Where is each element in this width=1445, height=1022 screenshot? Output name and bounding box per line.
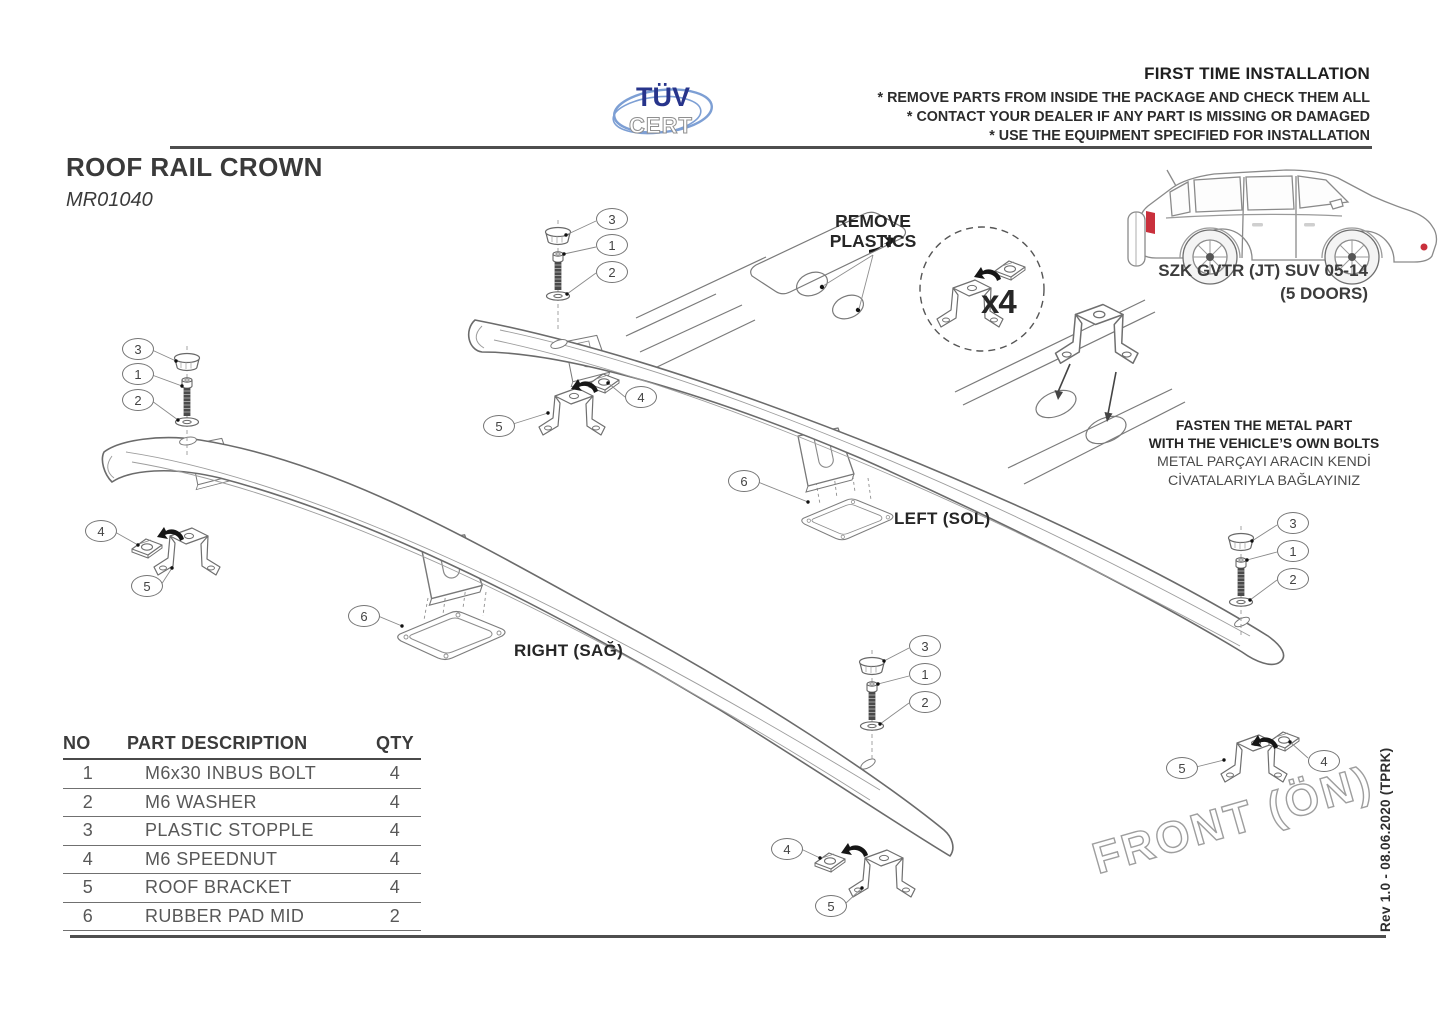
table-row: 6 RUBBER PAD MID 2 — [63, 903, 421, 932]
parts-table-header: NO PART DESCRIPTION QTY — [63, 733, 421, 760]
callout-4: 4 — [85, 520, 117, 542]
callout-5: 5 — [1166, 757, 1198, 779]
fasten-instruction-tr: CİVATALARIYLA BAĞLAYINIZ — [1148, 472, 1380, 490]
col-description: PART DESCRIPTION — [127, 733, 369, 754]
tuv-cert-logo: TÜV CERT — [611, 82, 714, 138]
footer-divider — [70, 935, 1386, 938]
col-no: NO — [63, 733, 127, 754]
callout-2: 2 — [596, 261, 628, 283]
vehicle-doors: (5 DOORS) — [1158, 283, 1368, 306]
rubber-pad-right — [398, 586, 505, 660]
vehicle-caption: SZK GVTR (JT) SUV 05-14 (5 DOORS) — [1158, 260, 1368, 306]
fastener-stack — [546, 220, 571, 332]
bracket-assembly-right — [1221, 732, 1299, 782]
taillight — [1146, 211, 1155, 234]
first-time-note: * USE THE EQUIPMENT SPECIFIED FOR INSTAL… — [878, 127, 1370, 146]
tuv-logo-text: TÜV — [636, 82, 690, 112]
fastener-stack — [860, 650, 885, 762]
callout-1: 1 — [596, 234, 628, 256]
table-row: 1 M6x30 INBUS BOLT 4 — [63, 760, 421, 789]
callout-2: 2 — [122, 389, 154, 411]
vehicle-model: SZK GVTR (JT) SUV 05-14 — [1158, 260, 1368, 283]
page-title: ROOF RAIL CROWN — [66, 152, 323, 183]
parts-table: NO PART DESCRIPTION QTY 1 M6x30 INBUS BO… — [63, 733, 421, 931]
callout-3: 3 — [596, 208, 628, 230]
multiplier-label: x4 — [981, 283, 1016, 321]
callout-3: 3 — [909, 635, 941, 657]
first-time-title: FIRST TIME INSTALLATION — [878, 64, 1370, 84]
callout-4: 4 — [1308, 750, 1340, 772]
first-time-installation-block: FIRST TIME INSTALLATION * REMOVE PARTS F… — [878, 64, 1370, 146]
callout-1: 1 — [1277, 540, 1309, 562]
revision-note: Rev 1.0 - 08.06.2020 (TPRK) — [1378, 748, 1393, 932]
cert-logo-text: CERT — [629, 113, 693, 138]
right-rail-label: RIGHT (SAĞ) — [514, 641, 623, 661]
callout-4: 4 — [771, 838, 803, 860]
bracket-assembly-bottom — [815, 843, 915, 897]
callout-6: 6 — [348, 605, 380, 627]
callout-5: 5 — [483, 415, 515, 437]
callout-3: 3 — [122, 338, 154, 360]
callout-2: 2 — [909, 691, 941, 713]
fog-lamp — [1421, 244, 1428, 251]
table-row: 5 ROOF BRACKET 4 — [63, 874, 421, 903]
callout-4: 4 — [625, 386, 657, 408]
fasten-instruction-block: FASTEN THE METAL PART WITH THE VEHICLE’S… — [1148, 417, 1380, 490]
table-row: 3 PLASTIC STOPPLE 4 — [63, 817, 421, 846]
fasten-instruction-en: FASTEN THE METAL PART — [1148, 417, 1380, 435]
fasten-instruction-en: WITH THE VEHICLE’S OWN BOLTS — [1148, 435, 1380, 453]
col-qty: QTY — [369, 733, 421, 754]
callout-6: 6 — [728, 470, 760, 492]
callout-5: 5 — [815, 895, 847, 917]
callout-3: 3 — [1277, 512, 1309, 534]
product-code: MR01040 — [66, 189, 323, 212]
callout-2: 2 — [1277, 568, 1309, 590]
antenna — [1167, 170, 1176, 186]
callout-5: 5 — [131, 575, 163, 597]
instruction-sheet: TÜV CERT — [0, 0, 1445, 1022]
first-time-note: * REMOVE PARTS FROM INSIDE THE PACKAGE A… — [878, 89, 1370, 108]
first-time-note: * CONTACT YOUR DEALER IF ANY PART IS MIS… — [878, 108, 1370, 127]
callout-1: 1 — [122, 363, 154, 385]
bracket-assembly-left — [132, 527, 220, 575]
table-row: 2 M6 WASHER 4 — [63, 789, 421, 818]
fasten-instruction-tr: METAL PARÇAYI ARACIN KENDİ — [1148, 453, 1380, 471]
remove-plastics-label: REMOVE PLASTICS — [795, 211, 951, 252]
title-block: ROOF RAIL CROWN MR01040 — [66, 152, 323, 212]
callout-1: 1 — [909, 663, 941, 685]
table-row: 4 M6 SPEEDNUT 4 — [63, 846, 421, 875]
left-rail-label: LEFT (SOL) — [894, 509, 990, 529]
